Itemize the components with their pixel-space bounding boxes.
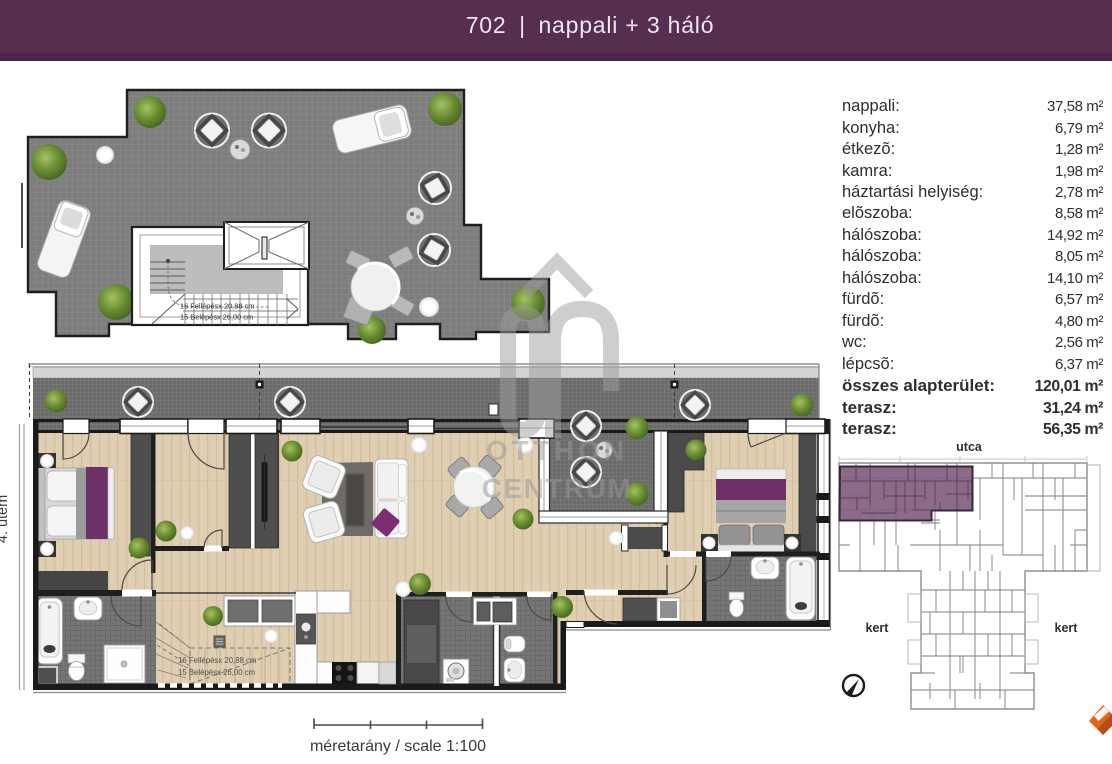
svg-text:étkezõ:: étkezõ: <box>842 140 895 158</box>
svg-text:37,58 m²: 37,58 m² <box>1047 98 1103 115</box>
svg-text:31,24 m²: 31,24 m² <box>1043 400 1103 417</box>
svg-text:nappali:: nappali: <box>842 97 900 115</box>
svg-text:lépcsõ:: lépcsõ: <box>842 355 894 373</box>
svg-text:terasz:: terasz: <box>842 398 897 417</box>
svg-text:wc:: wc: <box>841 333 867 351</box>
svg-text:1,28 m²: 1,28 m² <box>1055 141 1103 158</box>
svg-text:4. ütem: 4. ütem <box>0 495 11 543</box>
svg-text:összes alapterület:: összes alapterület: <box>842 376 995 395</box>
svg-text:14,10 m²: 14,10 m² <box>1047 270 1103 287</box>
svg-text:4,80 m²: 4,80 m² <box>1055 313 1103 330</box>
svg-text:6,57 m²: 6,57 m² <box>1055 291 1103 308</box>
svg-text:elõszoba:: elõszoba: <box>842 204 913 222</box>
svg-text:6,79 m²: 6,79 m² <box>1055 120 1103 137</box>
svg-text:702 | nappali + 3 háló: 702 | nappali + 3 háló <box>466 12 715 38</box>
svg-text:16 Fellépésx 20,88 cm: 16 Fellépésx 20,88 cm <box>180 302 254 311</box>
svg-text:56,35 m²: 56,35 m² <box>1043 421 1103 438</box>
svg-text:terasz:: terasz: <box>842 419 897 438</box>
svg-text:2,78 m²: 2,78 m² <box>1055 184 1103 201</box>
svg-text:15 Belépésx 26,00 cm: 15 Belépésx 26,00 cm <box>180 313 253 322</box>
svg-text:fürdõ:: fürdõ: <box>842 290 884 308</box>
svg-text:CENTRUM: CENTRUM <box>482 473 633 504</box>
svg-text:OTTHON: OTTHON <box>486 435 628 466</box>
svg-text:kamra:: kamra: <box>842 162 892 180</box>
svg-text:méretarány / scale 1:100: méretarány / scale 1:100 <box>310 738 486 755</box>
svg-text:hálószoba:: hálószoba: <box>842 226 922 244</box>
svg-text:6,37 m²: 6,37 m² <box>1055 356 1103 373</box>
svg-text:14,92 m²: 14,92 m² <box>1047 227 1103 244</box>
svg-text:konyha:: konyha: <box>842 119 900 137</box>
svg-text:hálószoba:: hálószoba: <box>842 269 922 287</box>
svg-text:1,98 m²: 1,98 m² <box>1055 163 1103 180</box>
svg-text:15 Belépésx 26,00 cm: 15 Belépésx 26,00 cm <box>178 668 255 677</box>
svg-text:kert: kert <box>1055 621 1079 635</box>
svg-text:8,05 m²: 8,05 m² <box>1055 248 1103 265</box>
svg-text:kert: kert <box>866 621 890 635</box>
svg-text:16 Fellépésx 20,88 cm: 16 Fellépésx 20,88 cm <box>178 656 256 665</box>
svg-text:8,58 m²: 8,58 m² <box>1055 205 1103 222</box>
svg-text:háztartási helyiség:: háztartási helyiség: <box>842 183 983 201</box>
svg-text:utca: utca <box>956 440 983 454</box>
svg-text:hálószoba:: hálószoba: <box>842 247 922 265</box>
svg-text:2,56 m²: 2,56 m² <box>1055 334 1103 351</box>
svg-text:fürdõ:: fürdõ: <box>842 312 884 330</box>
svg-text:120,01 m²: 120,01 m² <box>1035 378 1104 395</box>
